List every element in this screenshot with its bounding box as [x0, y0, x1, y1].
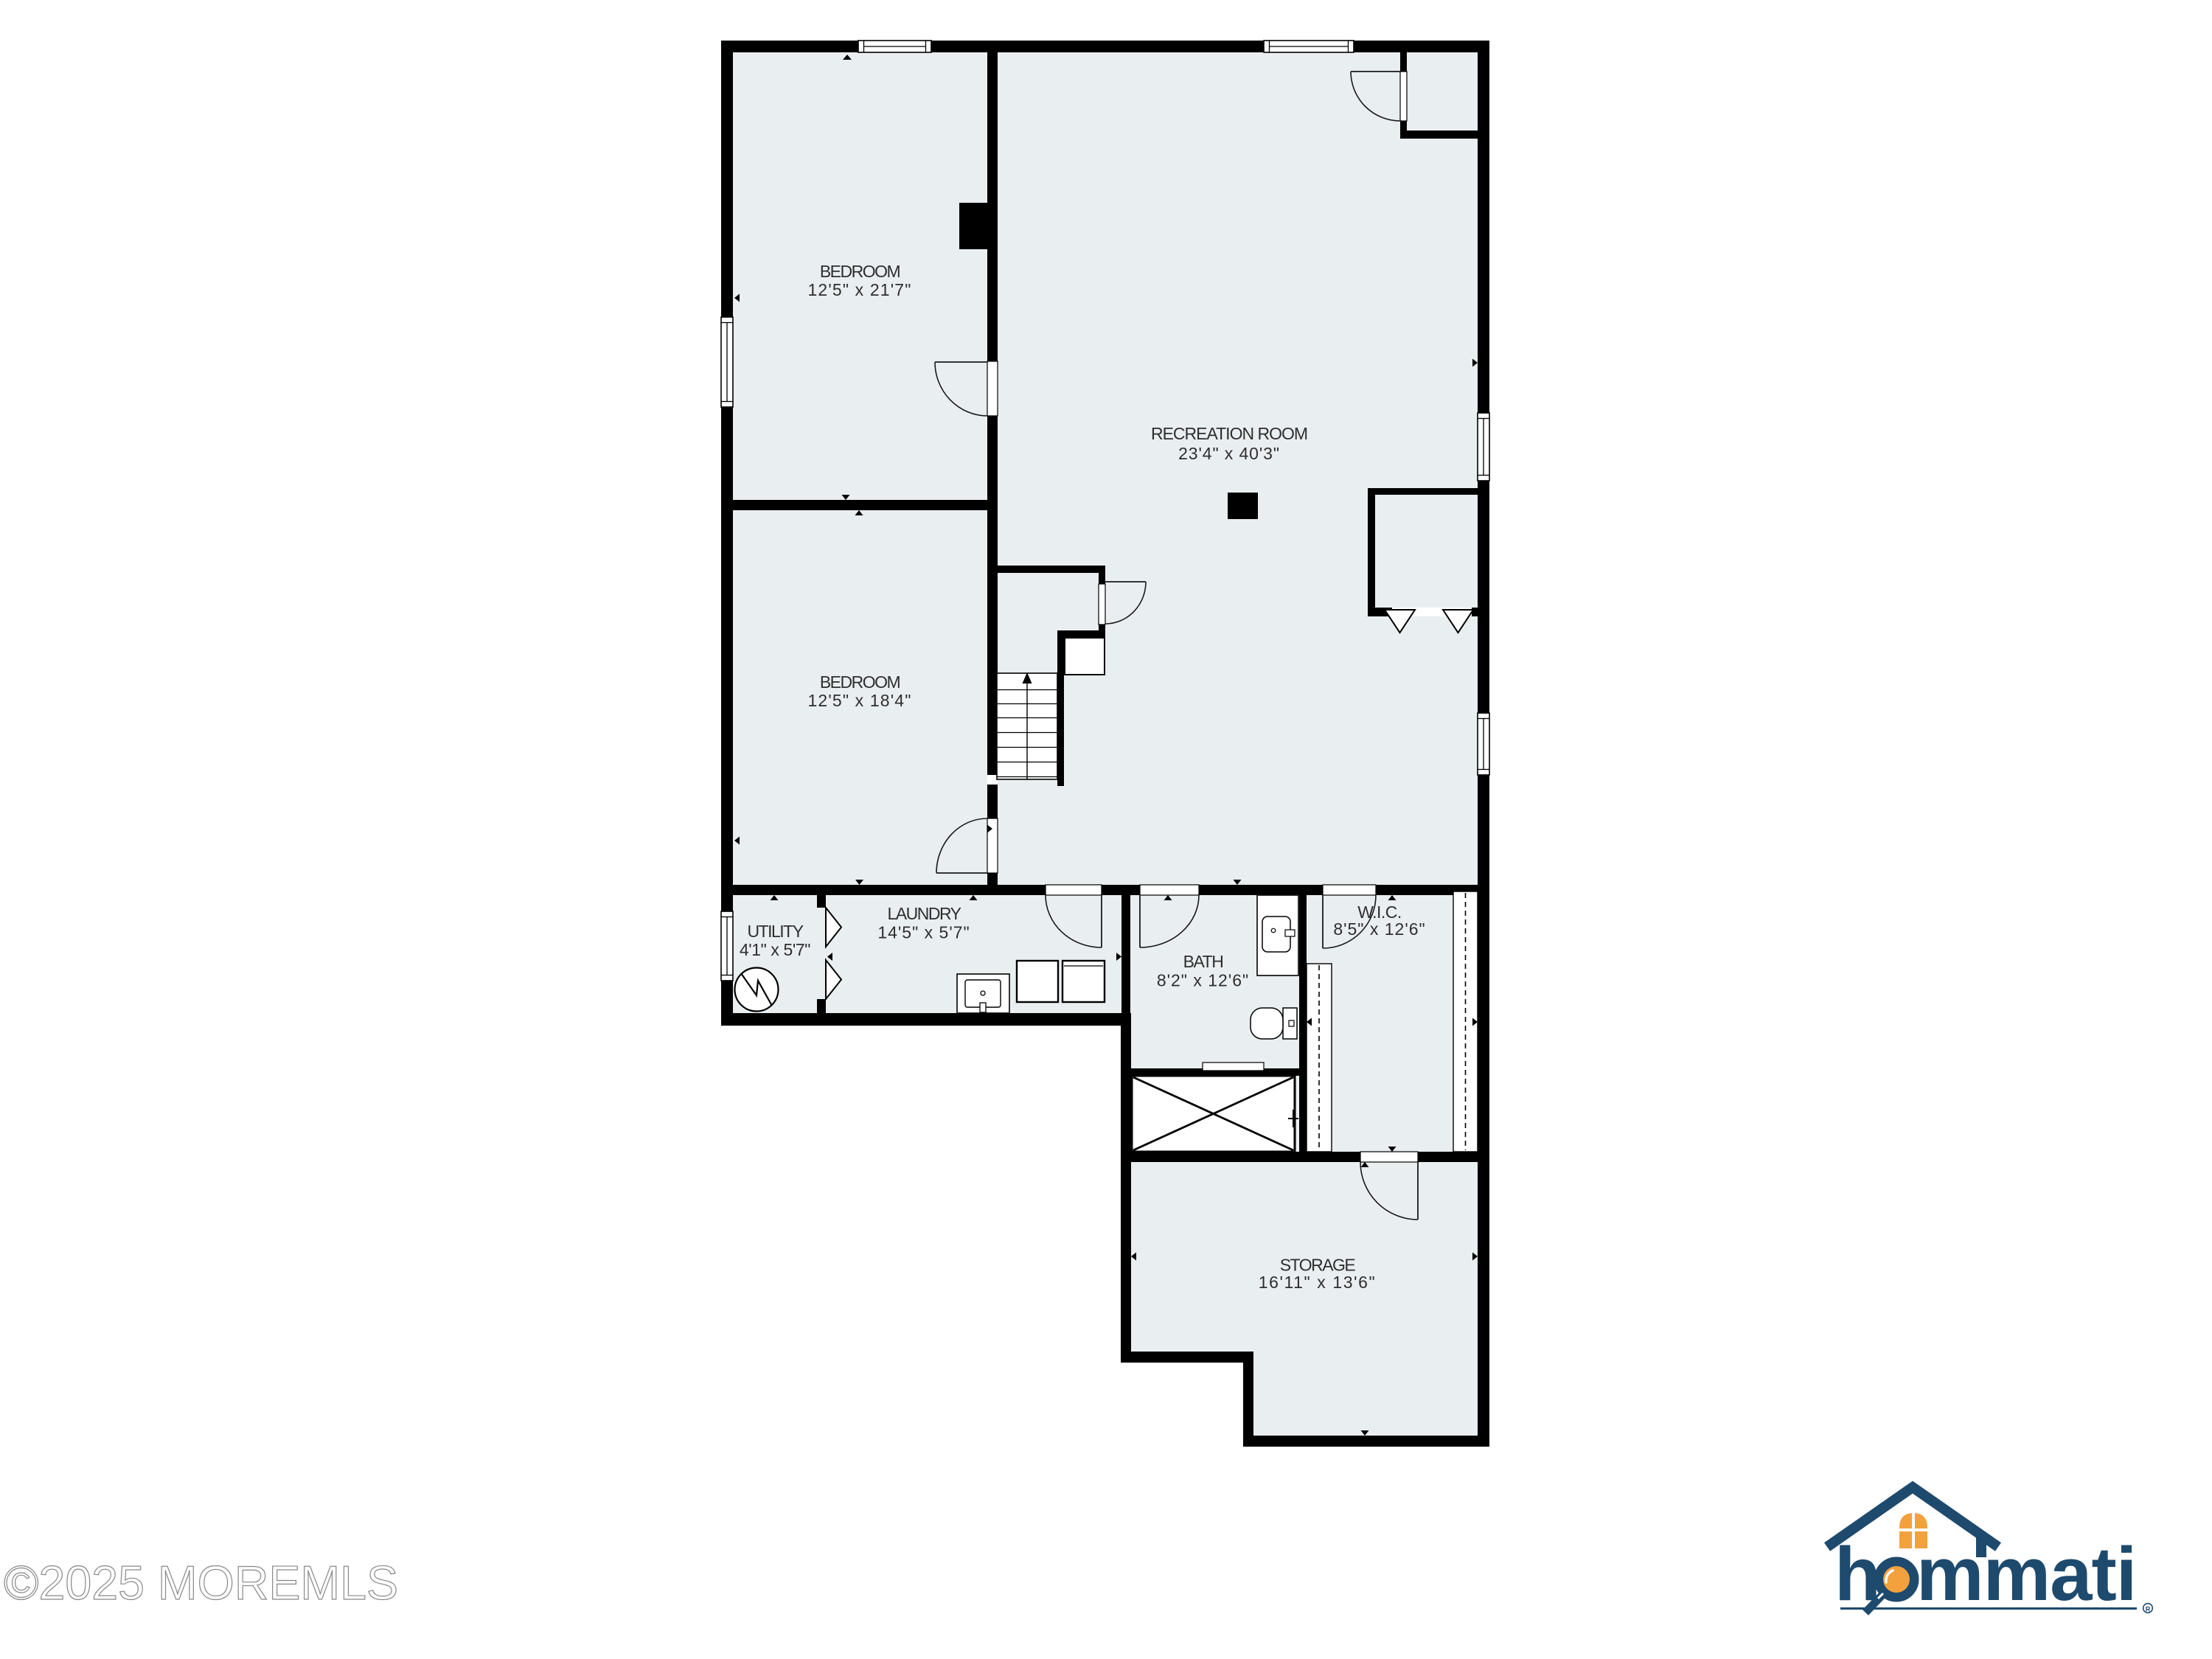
svg-text:UTILITY: UTILITY [747, 922, 803, 941]
svg-text:RECREATION ROOM: RECREATION ROOM [1151, 424, 1307, 443]
svg-text:14'5" x 5'7": 14'5" x 5'7" [877, 923, 970, 942]
svg-text:LAUNDRY: LAUNDRY [888, 904, 961, 923]
svg-text:BEDROOM: BEDROOM [820, 262, 900, 281]
svg-text:23'4" x 40'3": 23'4" x 40'3" [1178, 444, 1280, 463]
svg-text:4'1" x 5'7": 4'1" x 5'7" [740, 940, 810, 959]
svg-text:12'5" x 18'4": 12'5" x 18'4" [807, 691, 911, 710]
svg-text:8'5" x 12'6": 8'5" x 12'6" [1333, 919, 1425, 939]
svg-text:mmati: mmati [1916, 1531, 2136, 1616]
svg-text:8'2" x 12'6": 8'2" x 12'6" [1157, 971, 1249, 990]
svg-text:R: R [2146, 1606, 2151, 1613]
svg-text:STORAGE: STORAGE [1280, 1256, 1356, 1275]
svg-text:©2025 MOREMLS: ©2025 MOREMLS [4, 1557, 398, 1610]
svg-text:12'5" x 21'7": 12'5" x 21'7" [807, 280, 911, 299]
svg-text:BEDROOM: BEDROOM [820, 672, 900, 692]
svg-text:16'11" x 13'6": 16'11" x 13'6" [1259, 1273, 1377, 1292]
svg-text:BATH: BATH [1183, 952, 1223, 971]
